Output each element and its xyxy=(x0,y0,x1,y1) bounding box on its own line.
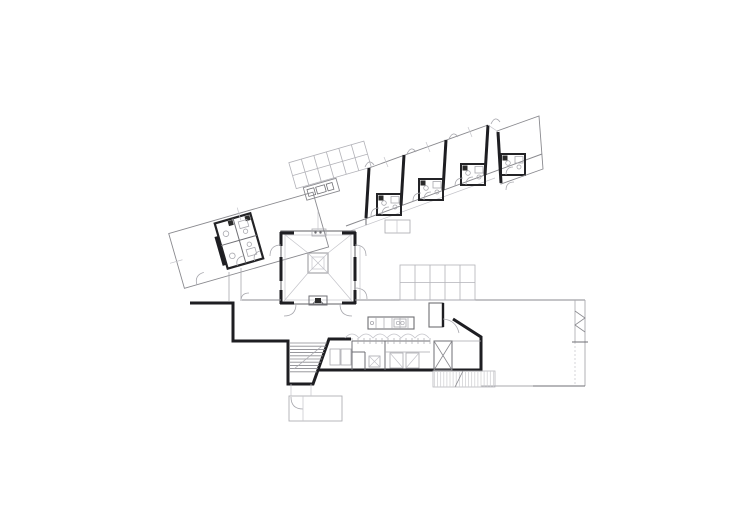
lower-wing xyxy=(190,246,588,421)
floor-plan xyxy=(0,0,750,530)
bathroom-pod-1 xyxy=(377,194,401,215)
pod-dark-fixture xyxy=(463,166,468,171)
bath-dark-fixture-1 xyxy=(228,220,234,226)
deck-hatch xyxy=(435,371,494,387)
module-door-arc-5 xyxy=(506,182,514,190)
hall-diagonal-bl xyxy=(284,273,308,301)
module-5-link xyxy=(488,125,497,131)
fireplace-core xyxy=(315,298,321,303)
hall-outer-square xyxy=(281,231,355,304)
pod-dark-fixture xyxy=(379,196,384,201)
retaining-wall-stepped xyxy=(190,303,351,384)
pod-sink xyxy=(382,201,387,206)
hall-top-cabinet-dot-1 xyxy=(314,231,316,233)
buffet-box-2 xyxy=(316,185,327,194)
band-right-modules xyxy=(346,116,543,233)
pod-toilet xyxy=(433,182,441,189)
wall-top-flag-4 xyxy=(491,119,500,124)
section-zigzag xyxy=(575,311,585,332)
pod-sink xyxy=(466,171,471,176)
deck-outline xyxy=(433,371,495,387)
bathroom-pod-3 xyxy=(461,164,485,185)
central-hall xyxy=(270,211,367,316)
hall-diagonal-tl xyxy=(284,234,308,253)
corridor-bench xyxy=(385,220,410,233)
hall-door-arc-right-2 xyxy=(355,288,367,299)
hall-diagonal-tr xyxy=(328,234,352,253)
module-5-left-wall xyxy=(498,132,501,183)
cooktop-burner-1 xyxy=(396,321,399,324)
bath-toilet-2-seat xyxy=(247,242,252,247)
island-sink xyxy=(370,321,373,324)
hall-door-arc-left xyxy=(270,245,281,256)
pod-toilet-seat xyxy=(517,165,521,169)
closet-box-1 xyxy=(330,349,340,365)
appliance-1-diag xyxy=(390,353,403,368)
buffet-box-3 xyxy=(326,183,334,191)
kitchen-island xyxy=(368,317,414,329)
bath-sink-1 xyxy=(223,230,230,237)
pergola-midrow xyxy=(293,154,368,175)
pod-toilet xyxy=(475,167,483,174)
hall-diagonal-br xyxy=(328,273,352,301)
module-wall-1 xyxy=(366,168,369,218)
bath-toilet-1 xyxy=(238,219,249,228)
plan-svg xyxy=(0,0,750,530)
left-wing-outline xyxy=(169,192,329,288)
pod-door-arc xyxy=(506,167,513,175)
entry-box xyxy=(429,303,443,327)
pod-sink xyxy=(506,161,511,166)
bath-sink-2 xyxy=(229,252,236,259)
cabinet-scallops xyxy=(345,334,429,338)
hall-inner-square xyxy=(285,235,351,300)
vestibule-outline xyxy=(289,396,342,421)
hall-door-arc-right xyxy=(355,245,366,256)
pod-sink xyxy=(424,186,429,191)
bath-toilet-2 xyxy=(246,247,257,256)
pod-dark-fixture xyxy=(503,156,508,161)
bath-dark-fixture-2 xyxy=(244,215,250,221)
hall-door-arc-br xyxy=(340,304,352,316)
pod-toilet xyxy=(391,197,399,204)
closet-box-2 xyxy=(341,349,351,365)
hall-top-cabinet-dot-2 xyxy=(319,231,321,233)
pod-dark-fixture xyxy=(421,181,426,186)
bathroom-pod-2 xyxy=(419,179,443,200)
hall-door-arc-bl xyxy=(284,304,296,316)
appliance-2-diag xyxy=(406,353,419,368)
module-5-outline xyxy=(497,116,543,184)
vestibule-door-arc xyxy=(291,397,303,409)
cooktop-burner-2 xyxy=(401,321,404,324)
buffet-box-1 xyxy=(307,188,316,197)
bath-toilet-1-seat xyxy=(243,229,248,234)
